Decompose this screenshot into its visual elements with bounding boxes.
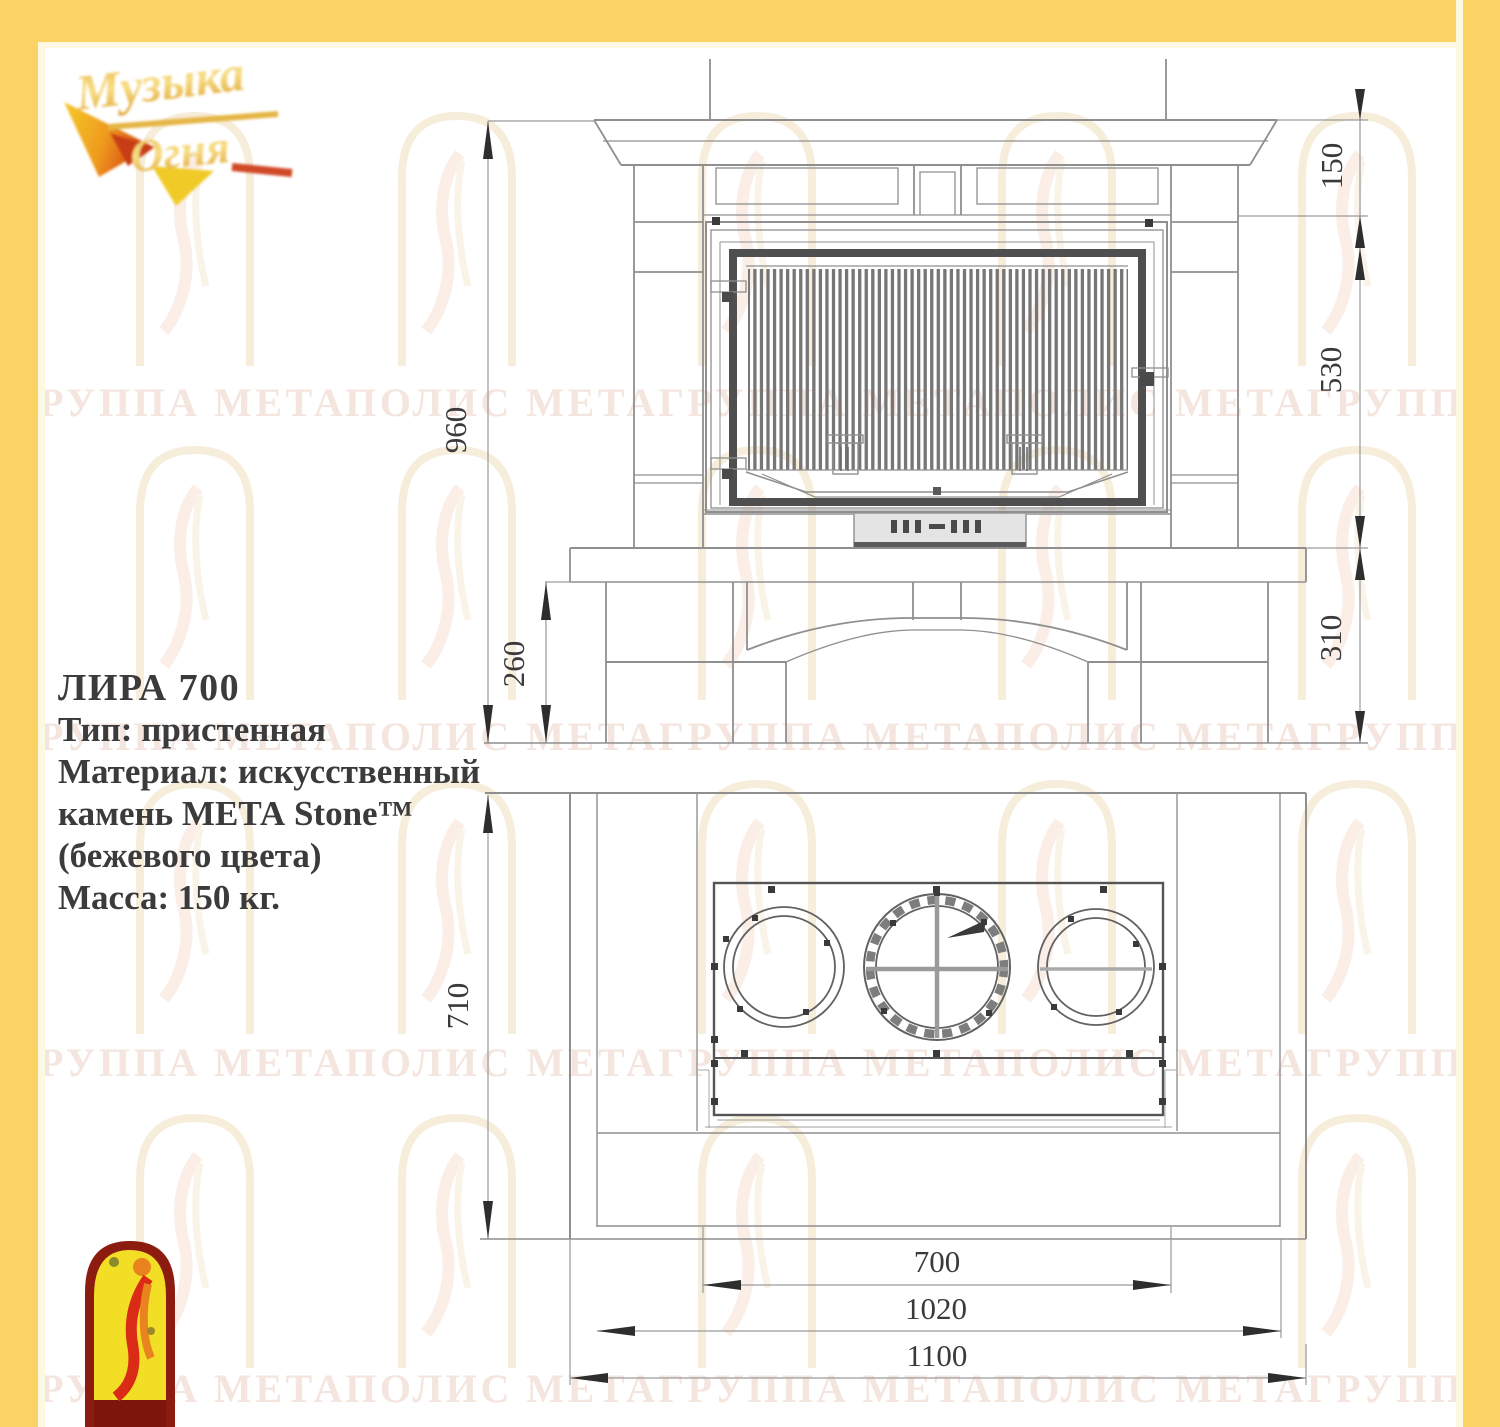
svg-text:Масса: 150 кг.: Масса: 150 кг.	[58, 878, 280, 917]
svg-text:ЛИРА 700: ЛИРА 700	[58, 667, 240, 709]
svg-text:310: 310	[1313, 615, 1348, 662]
svg-text:700: 700	[914, 1244, 961, 1279]
svg-text:150: 150	[1314, 143, 1349, 190]
svg-text:960: 960	[438, 407, 473, 454]
svg-text:ГРУППА МЕТАПОЛИС МЕТАГРУППА МЕ: ГРУППА МЕТАПОЛИС МЕТАГРУППА МЕТАПОЛИС МЕ…	[10, 1040, 1500, 1085]
svg-text:260: 260	[496, 641, 531, 688]
svg-text:Тип: пристенная: Тип: пристенная	[58, 710, 326, 749]
svg-text:1020: 1020	[905, 1291, 967, 1326]
svg-text:1100: 1100	[907, 1338, 968, 1373]
svg-text:710: 710	[440, 983, 475, 1030]
svg-text:530: 530	[1313, 347, 1348, 394]
svg-text:Огня: Огня	[128, 121, 232, 182]
svg-text:Материал: искусственный: Материал: искусственный	[58, 752, 480, 791]
svg-text:(бежевого цвета): (бежевого цвета)	[58, 836, 322, 875]
svg-text:ГРУППА МЕТАПОЛИС МЕТАГРУППА МЕ: ГРУППА МЕТАПОЛИС МЕТАГРУППА МЕТАПОЛИС МЕ…	[10, 1366, 1500, 1411]
svg-text:камень МЕТА Stone™: камень МЕТА Stone™	[58, 794, 413, 833]
